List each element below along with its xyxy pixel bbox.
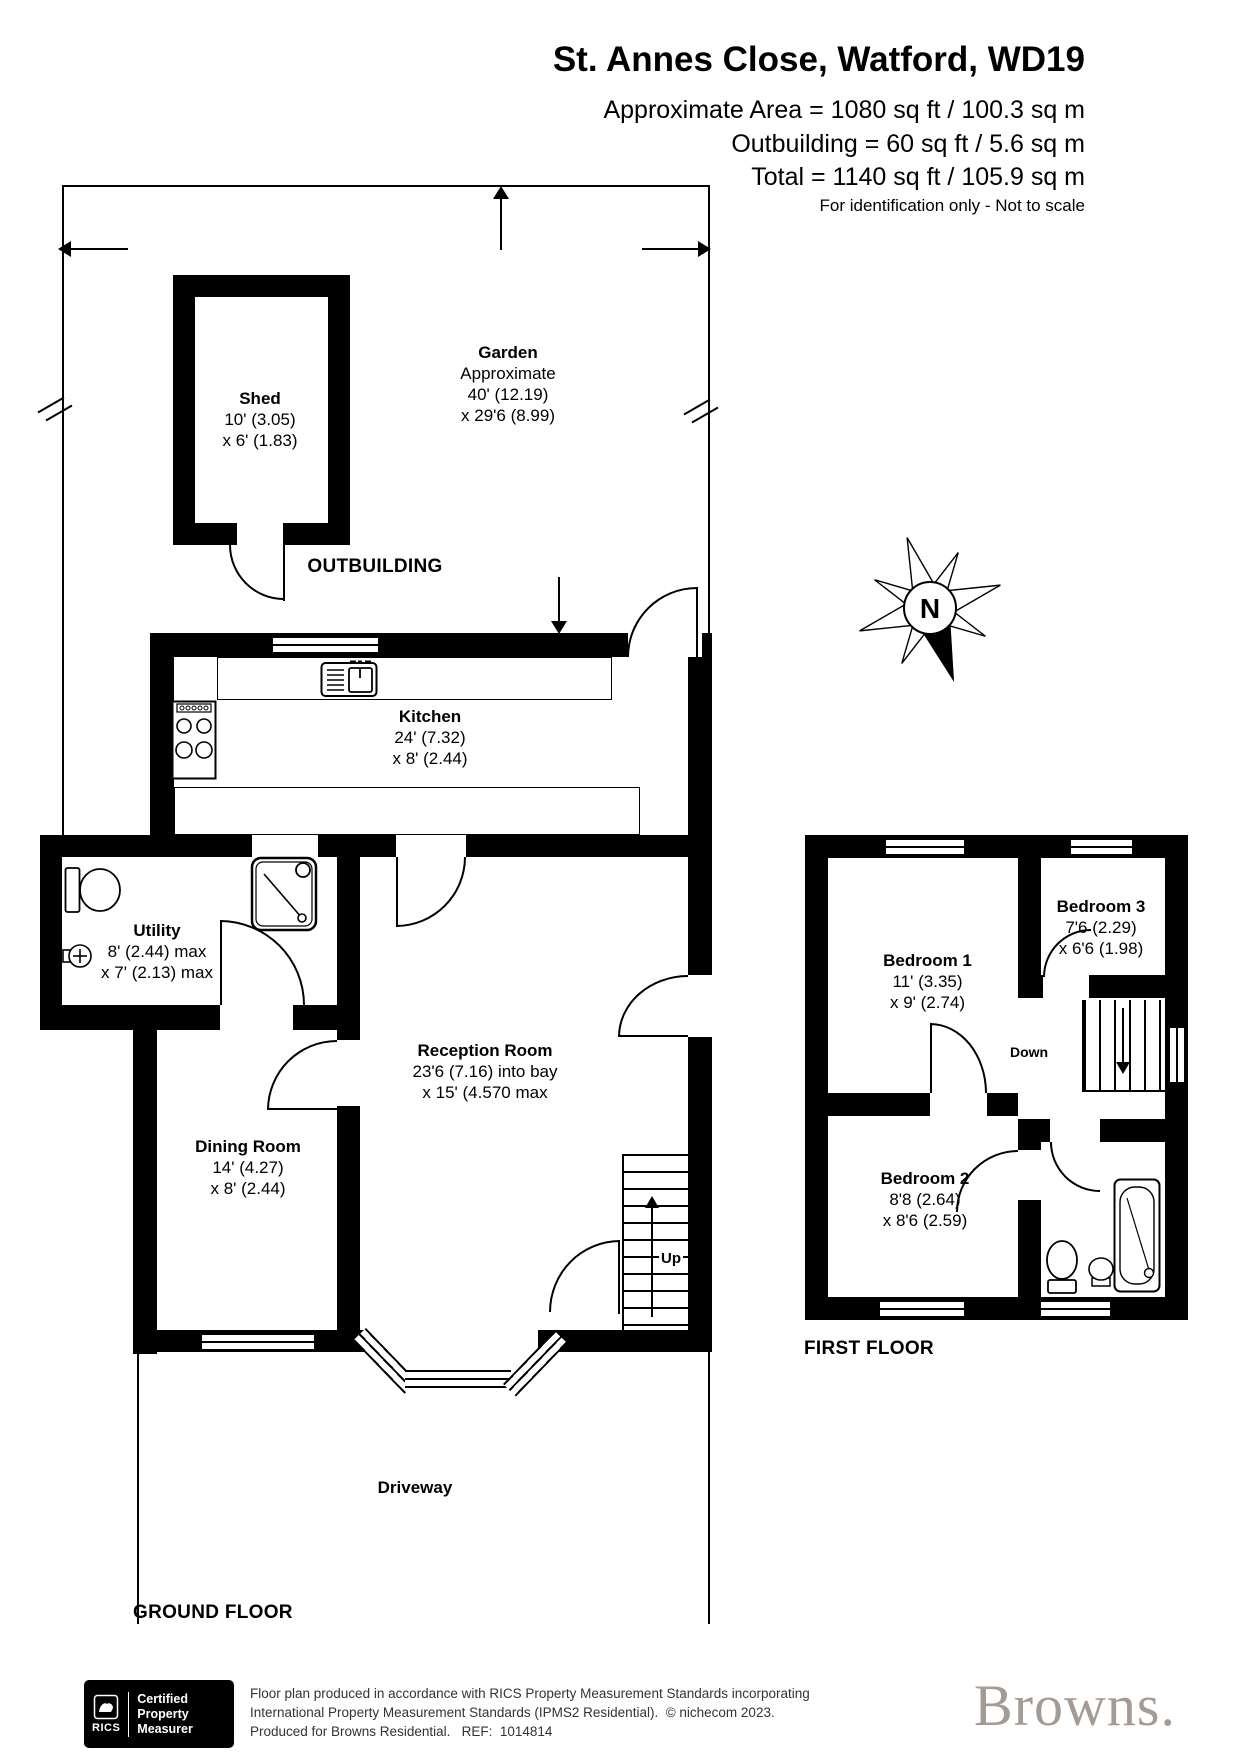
arrow-right-icon	[698, 241, 711, 257]
footer-disclaimer-2: International Property Measurement Stand…	[250, 1703, 850, 1722]
door-arc	[396, 857, 466, 927]
door-opening	[1043, 975, 1089, 998]
bedroom1-dim2: x 9' (2.74)	[840, 992, 1015, 1013]
kitchen-name: Kitchen	[355, 706, 505, 727]
arrow-left-icon	[70, 248, 128, 250]
garden-line1: Approximate	[408, 363, 608, 384]
arrow-up-icon	[493, 186, 509, 199]
stairs-arrow-icon	[1122, 1008, 1124, 1066]
door-leaf	[267, 1108, 339, 1110]
door-arc	[618, 975, 688, 1037]
door-arc	[549, 1240, 620, 1312]
wall	[318, 835, 396, 857]
rics-line1: Certified	[137, 1692, 193, 1707]
rics-badge-text: Certified Property Measurer	[128, 1692, 193, 1737]
wall	[688, 1037, 712, 1152]
wall	[1018, 1119, 1188, 1142]
arrow-up-icon	[500, 198, 502, 250]
bedroom3-dim1: 7'6 (2.29)	[1030, 917, 1172, 938]
rics-badge: RICS Certified Property Measurer	[84, 1680, 234, 1748]
door-opening	[930, 1093, 987, 1116]
utility-dim2: x 7' (2.13) max	[62, 962, 252, 983]
wall	[293, 1005, 360, 1030]
ground-floor-label: GROUND FLOOR	[133, 1602, 293, 1624]
bedroom1-label: Bedroom 1 11' (3.35) x 9' (2.74)	[840, 950, 1015, 1013]
reception-dim1: 23'6 (7.16) into bay	[385, 1061, 585, 1082]
reception-dim2: x 15' (4.570 max	[385, 1082, 585, 1103]
bedroom3-name: Bedroom 3	[1030, 896, 1172, 917]
kitchen-dim1: 24' (7.32)	[355, 727, 505, 748]
boundary-break-icon	[692, 407, 719, 424]
bedroom3-label: Bedroom 3 7'6 (2.29) x 6'6 (1.98)	[1030, 896, 1172, 959]
door-leaf	[618, 1035, 688, 1037]
bedroom2-label: Bedroom 2 8'8 (2.64) x 8'6 (2.59)	[835, 1168, 1015, 1231]
bedroom2-dim1: 8'8 (2.64)	[835, 1189, 1015, 1210]
sink-icon	[320, 660, 378, 698]
garden-line3: x 29'6 (8.99)	[408, 405, 608, 426]
wall	[805, 1297, 1188, 1320]
wall	[173, 275, 350, 297]
bedroom2-dim2: x 8'6 (2.59)	[835, 1210, 1015, 1231]
bedroom3-dim2: x 6'6 (1.98)	[1030, 938, 1172, 959]
driveway-boundary-left	[137, 1352, 139, 1624]
entrance-arrow-icon	[558, 577, 560, 623]
toilet-icon	[64, 862, 122, 918]
wall	[40, 835, 62, 1030]
area-line-3: Total = 1140 sq ft / 105.9 sq m	[300, 163, 1085, 192]
rics-badge-left: RICS	[92, 1694, 120, 1734]
shed-label: Shed 10' (3.05) x 6' (1.83)	[185, 388, 335, 451]
door-leaf	[930, 1023, 932, 1093]
driveway-label: Driveway	[340, 1478, 490, 1498]
stairs-arrow-icon	[651, 1205, 653, 1317]
up-label: Up	[659, 1250, 683, 1267]
bay-window	[503, 1331, 567, 1397]
window	[273, 636, 378, 654]
reception-name: Reception Room	[385, 1040, 585, 1061]
rics-line3: Measurer	[137, 1722, 193, 1737]
garden-line2: 40' (12.19)	[408, 384, 608, 405]
garden-name: Garden	[408, 342, 608, 363]
utility-name: Utility	[62, 920, 252, 941]
kitchen-counter	[174, 787, 640, 835]
stairs-edge	[1082, 1000, 1084, 1092]
first-floor-label: FIRST FLOOR	[804, 1338, 934, 1360]
kitchen-counter	[217, 657, 612, 700]
bedroom1-name: Bedroom 1	[840, 950, 1015, 971]
stairs-arrow-icon	[645, 1196, 659, 1208]
bedroom2-name: Bedroom 2	[835, 1168, 1015, 1189]
area-line-2: Outbuilding = 60 sq ft / 5.6 sq m	[300, 130, 1085, 159]
compass-north-label: N	[920, 593, 940, 624]
door-arc	[267, 1040, 337, 1110]
window	[1168, 1028, 1186, 1082]
wall	[688, 657, 712, 975]
wall	[40, 835, 252, 857]
dining-dim2: x 8' (2.44)	[158, 1178, 338, 1199]
garden-boundary-left	[62, 185, 64, 835]
door-arc	[930, 1023, 987, 1093]
garden-label: Garden Approximate 40' (12.19) x 29'6 (8…	[408, 342, 608, 426]
down-label: Down	[1008, 1044, 1050, 1060]
outbuilding-label: OUTBUILDING	[300, 556, 450, 578]
wall	[133, 1030, 157, 1354]
reception-label: Reception Room 23'6 (7.16) into bay x 15…	[385, 1040, 585, 1103]
stove-icon	[171, 700, 217, 780]
shed-name: Shed	[185, 388, 335, 409]
door-arc	[1050, 1142, 1100, 1192]
floorplan-page: St. Annes Close, Watford, WD19 Approxima…	[0, 0, 1241, 1755]
driveway-boundary-right	[708, 1352, 710, 1624]
kitchen-label: Kitchen 24' (7.32) x 8' (2.44)	[355, 706, 505, 769]
staircase-up	[622, 1154, 688, 1330]
wall	[283, 523, 350, 545]
wall	[805, 835, 828, 1318]
entrance-arrow-icon	[551, 621, 567, 634]
browns-logo: Browns.	[816, 1672, 1176, 1739]
utility-dim1: 8' (2.44) max	[62, 941, 252, 962]
door-opening	[1018, 1150, 1041, 1200]
utility-label: Utility 8' (2.44) max x 7' (2.13) max	[62, 920, 252, 983]
bathtub-icon	[1113, 1178, 1161, 1293]
stairs-arrow-icon	[1116, 1062, 1130, 1074]
basin-icon	[1086, 1256, 1116, 1288]
window	[880, 1300, 964, 1318]
garden-boundary-top	[62, 185, 710, 187]
door-opening	[1050, 1119, 1100, 1142]
rics-org-label: RICS	[92, 1722, 120, 1734]
footer-disclaimer-1: Floor plan produced in accordance with R…	[250, 1684, 850, 1703]
door-opening	[337, 1040, 360, 1106]
door-arc	[627, 587, 697, 657]
window	[886, 838, 964, 856]
footer-disclaimer-3: Produced for Browns Residential. REF: 10…	[250, 1722, 850, 1741]
bay-window	[405, 1370, 511, 1388]
window	[1071, 838, 1132, 856]
boundary-break-icon	[46, 405, 73, 422]
door-arc	[229, 545, 284, 600]
wall	[173, 523, 237, 545]
staircase-down	[1084, 1000, 1166, 1092]
window	[1037, 1300, 1110, 1318]
rics-lion-icon	[93, 1694, 119, 1720]
scale-note: For identification only - Not to scale	[300, 196, 1085, 216]
wall	[688, 1152, 712, 1330]
kitchen-dim2: x 8' (2.44)	[355, 748, 505, 769]
page-title: St. Annes Close, Watford, WD19	[300, 40, 1085, 80]
arrow-right-icon	[642, 248, 700, 250]
rics-line2: Property	[137, 1707, 193, 1722]
area-line-1: Approximate Area = 1080 sq ft / 100.3 sq…	[300, 96, 1085, 125]
dining-dim1: 14' (4.27)	[158, 1157, 338, 1178]
bedroom1-dim1: 11' (3.35)	[840, 971, 1015, 992]
door-leaf	[618, 1240, 620, 1314]
arrow-left-icon	[58, 241, 71, 257]
shed-dim1: 10' (3.05)	[185, 409, 335, 430]
shed-dim2: x 6' (1.83)	[185, 430, 335, 451]
wall	[40, 1005, 220, 1030]
dining-label: Dining Room 14' (4.27) x 8' (2.44)	[158, 1136, 338, 1199]
wall	[466, 835, 712, 857]
dining-name: Dining Room	[158, 1136, 338, 1157]
window	[202, 1333, 314, 1351]
compass-icon: N	[850, 528, 1010, 688]
toilet-icon	[1040, 1238, 1084, 1296]
shower-icon	[250, 856, 318, 932]
